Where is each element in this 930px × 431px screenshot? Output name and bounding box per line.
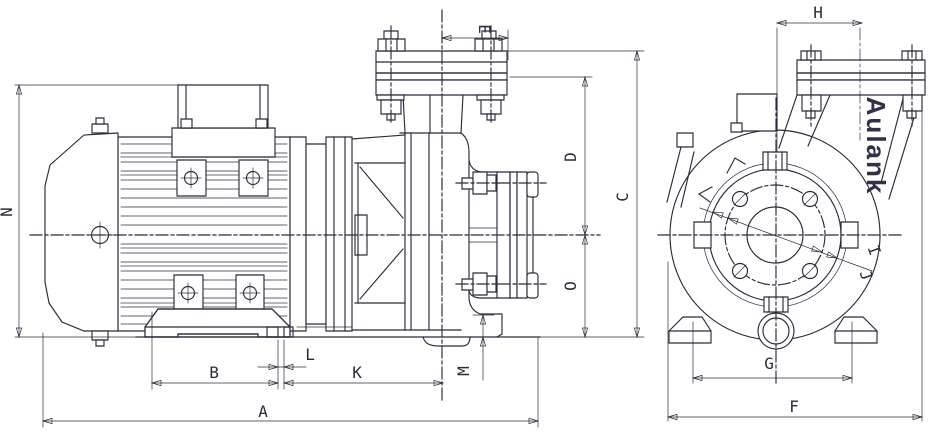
drawing-canvas: E N C D O M (0, 0, 930, 431)
casing-top-details (667, 94, 777, 207)
motor-front-flange (290, 137, 352, 331)
dim-label-d: D (561, 152, 580, 162)
rotation-arrow-icon (699, 187, 712, 202)
pump-dimensional-drawing: E N C D O M (0, 0, 930, 431)
dim-label-f: F (789, 397, 799, 416)
dim-label-c: C (613, 192, 632, 202)
motor-rear-cap (45, 118, 118, 346)
dimension-k: K (284, 363, 443, 386)
dim-label-g: G (764, 354, 774, 373)
dimension-a: A (43, 333, 538, 427)
dimension-l: L (258, 340, 315, 389)
pump-casing-side (400, 95, 502, 346)
dim-label-o: O (561, 281, 580, 291)
dim-label-b: B (209, 363, 219, 382)
dim-label-h: H (813, 3, 823, 22)
dimension-h: H (777, 3, 862, 152)
dim-label-e: E (475, 24, 494, 34)
dim-label-i: I (864, 242, 885, 258)
flange-bolt-icon (377, 31, 504, 120)
dim-label-n: N (0, 207, 16, 217)
dim-label-a: A (258, 402, 268, 421)
dim-label-m: M (454, 366, 473, 376)
dimension-m: M (454, 315, 494, 380)
front-view: Aulank H I J G (658, 3, 925, 421)
dim-label-l: L (305, 345, 315, 364)
dimension-o: O (561, 235, 588, 337)
dim-label-j: J (856, 267, 877, 283)
brand-logo: Aulank (861, 97, 891, 196)
motor-foot (145, 309, 290, 337)
dim-label-k: K (352, 363, 362, 382)
side-view: E N C D O M (0, 10, 644, 427)
discharge-flange-front (779, 45, 925, 199)
terminal-box (172, 85, 275, 157)
